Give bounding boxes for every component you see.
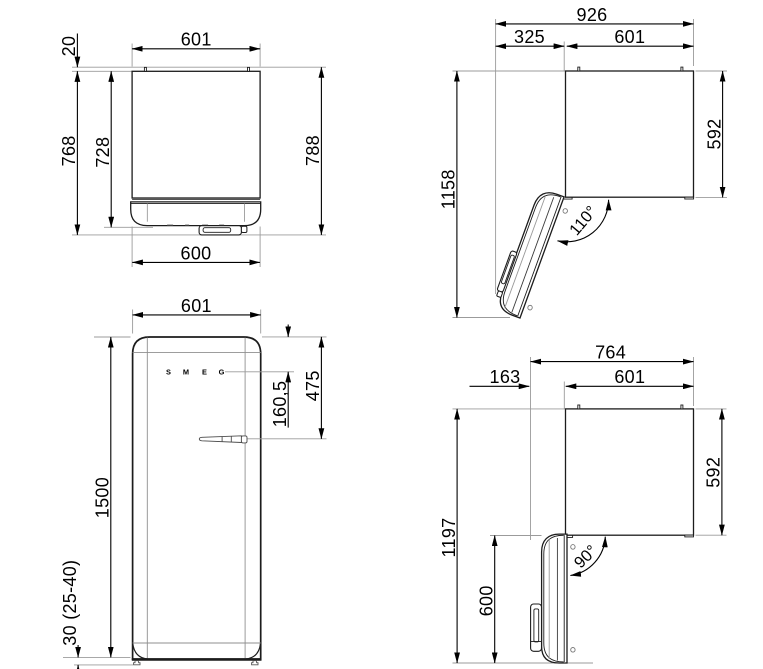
svg-text:768: 768: [59, 135, 79, 166]
svg-text:728: 728: [93, 137, 113, 168]
svg-text:592: 592: [704, 119, 724, 150]
svg-text:601: 601: [181, 296, 212, 316]
svg-text:S: S: [166, 368, 171, 377]
svg-text:M: M: [183, 368, 189, 377]
svg-text:1500: 1500: [93, 477, 113, 518]
svg-text:110°: 110°: [566, 203, 601, 239]
svg-text:600: 600: [476, 585, 496, 616]
svg-text:764: 764: [595, 343, 626, 363]
svg-text:325: 325: [514, 27, 545, 47]
svg-text:E: E: [202, 368, 207, 377]
svg-text:926: 926: [577, 5, 608, 25]
svg-text:20: 20: [59, 36, 79, 57]
svg-text:601: 601: [181, 30, 212, 50]
svg-text:601: 601: [614, 27, 645, 47]
svg-text:160,5: 160,5: [270, 381, 290, 428]
svg-text:592: 592: [704, 457, 724, 488]
svg-text:600: 600: [181, 243, 212, 263]
svg-text:1197: 1197: [439, 518, 459, 558]
svg-text:1158: 1158: [439, 169, 459, 209]
svg-text:30 (25-40): 30 (25-40): [60, 560, 80, 646]
svg-text:G: G: [219, 368, 225, 377]
svg-text:475: 475: [303, 370, 323, 401]
svg-text:163: 163: [490, 367, 521, 387]
svg-text:601: 601: [614, 367, 645, 387]
svg-text:788: 788: [303, 135, 323, 166]
